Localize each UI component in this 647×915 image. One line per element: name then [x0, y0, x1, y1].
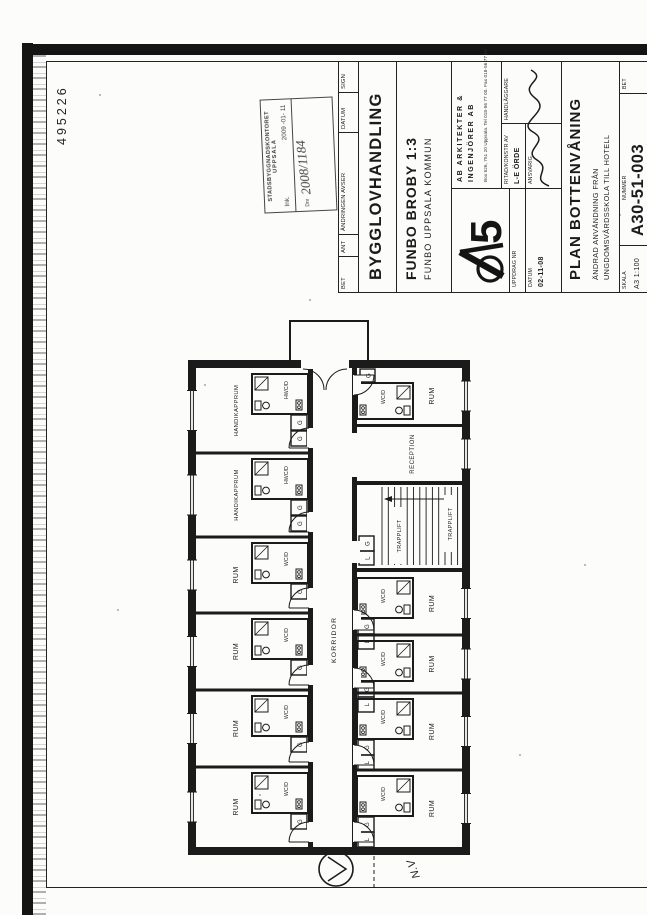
closet-label: L [365, 837, 371, 841]
bath-label: WC/D [381, 710, 387, 724]
wc-tank [404, 726, 410, 735]
room-label: HANDIKAPPRUM [234, 385, 240, 437]
divider [619, 61, 620, 292]
datum-value: 02-11-08 [538, 256, 545, 287]
closet-label: G [298, 436, 304, 441]
bath-label: HWC/D [284, 466, 290, 484]
scan-speckle [309, 299, 311, 301]
sink-bowl [362, 606, 365, 609]
reception-label: RECEPTION [410, 434, 416, 474]
wc-bowl [263, 571, 270, 578]
firm-address: Box 526, 751 20 Uppsala. Tel 018-56 77 0… [483, 64, 488, 182]
rev-header-avser: ÄNDRINGEN AVSER [339, 132, 359, 234]
wc-tank [255, 401, 261, 410]
wall-opening [307, 588, 315, 608]
ritad-label: RITAD/KONSTR AV [504, 135, 510, 184]
wall-opening [461, 381, 471, 411]
wall-opening [352, 433, 360, 477]
divider [561, 61, 562, 292]
bath-label: WC/D [284, 628, 290, 642]
wc-tank [255, 646, 261, 655]
wall-opening [307, 665, 315, 685]
plan-line [255, 377, 268, 390]
wall-opening [187, 714, 197, 744]
room-label: RUM [429, 595, 436, 612]
drawing-title: PLAN BOTTENVÅNING [567, 98, 584, 280]
divider [501, 61, 502, 189]
door-swing [326, 369, 347, 390]
wall [357, 424, 462, 427]
wc-bowl [263, 724, 270, 731]
wc-bowl [263, 801, 270, 808]
bath-label: WC/D [284, 705, 290, 719]
wall [196, 536, 308, 539]
room-label: HANDIKAPPRUM [234, 469, 240, 521]
wall-opening [187, 475, 197, 515]
closet-label: G [298, 505, 304, 510]
sink-bowl [298, 406, 301, 409]
wc-tank [404, 803, 410, 812]
door-swing [289, 822, 309, 842]
wall-opening [187, 637, 197, 667]
wc-tank [404, 406, 410, 415]
wall-opening [307, 428, 315, 448]
wall-opening [352, 541, 360, 563]
closet-label: G [365, 624, 371, 629]
scan-speckle [99, 94, 101, 96]
wall [196, 766, 308, 769]
bath-label: WC/D [381, 652, 387, 666]
door-swing [289, 588, 309, 608]
closet-label: L [365, 760, 371, 764]
scan-speckle [117, 609, 119, 611]
plan-line [255, 776, 268, 789]
sink-bowl [298, 575, 301, 578]
plan-line [255, 462, 268, 475]
wall-opening [353, 610, 361, 630]
scan-speckle [584, 564, 586, 566]
closet-label: L [365, 639, 371, 643]
drawing-sheet: 495226 RUMWC/DGRUMWC/DGRUMWC/DGRUMWC/DGH… [0, 0, 647, 915]
room-label: RUM [233, 720, 240, 737]
rev-header-ant: ANT [339, 234, 359, 256]
wall-opening [187, 391, 197, 431]
wc-tank [255, 570, 261, 579]
sink-bowl [362, 411, 365, 414]
room-label: RUM [233, 643, 240, 660]
scan-speckle [259, 794, 261, 796]
wc-bowl [263, 487, 270, 494]
sink-bowl [298, 487, 301, 490]
plan-line [397, 644, 410, 657]
wall [196, 689, 308, 692]
wall-opening [461, 717, 471, 747]
wall [357, 481, 462, 485]
wall-opening [307, 742, 315, 762]
handwritten-note: N.V [404, 856, 422, 880]
door-swing [303, 369, 324, 390]
divider [451, 61, 452, 292]
divider [619, 245, 647, 246]
rev-header-sign: SIGN [339, 61, 359, 92]
sink-bowl [362, 804, 365, 807]
room-label: RUM [429, 387, 436, 404]
wall-opening [307, 822, 315, 842]
stair-label: TRAPPLIFT [448, 507, 454, 540]
wall-opening [461, 794, 471, 824]
plan-line [255, 546, 268, 559]
bath-label: WC/D [284, 552, 290, 566]
wc-tank [404, 668, 410, 677]
sink-bowl [298, 491, 301, 494]
bath-label: WC/D [381, 787, 387, 801]
document-type: BYGGLOVHANDLING [367, 92, 386, 280]
room-label: RUM [429, 723, 436, 740]
stamp-ink-label: Ink. [284, 196, 291, 207]
plan-line [255, 622, 268, 635]
divider [509, 189, 510, 292]
closet-label: G [298, 420, 304, 425]
room-label: RUM [429, 800, 436, 817]
rev-header-datum: DATUM [339, 92, 359, 132]
municipality: FUNBO UPPSALA KOMMUN [423, 137, 433, 280]
bath-wall [252, 543, 308, 583]
wall-opening [461, 589, 471, 619]
site-circle-symbol [319, 852, 353, 886]
wall-opening [307, 512, 315, 532]
sink-bowl [298, 647, 301, 650]
wc-bowl [396, 804, 403, 811]
wc-bowl [396, 727, 403, 734]
plan-line [397, 702, 410, 715]
ritad-value: L-E ÖRDE [514, 147, 521, 184]
wc-bowl [396, 669, 403, 676]
nummer-label: NUMMER [622, 175, 628, 200]
sink-bowl [298, 402, 301, 405]
room-label: RUM [429, 655, 436, 672]
rev-header-bet: BET [339, 256, 359, 292]
closet-label: L [366, 556, 372, 560]
closet-label: G [366, 541, 372, 546]
signature-scribble [523, 64, 559, 192]
approval-stamp: STADSBYGGNADSKONTORET UPPSALA Ink. 2009 … [260, 96, 338, 213]
wall-opening [353, 375, 361, 395]
sink-bowl [362, 731, 365, 734]
bet-label: BET [622, 78, 628, 89]
wall-opening [461, 439, 471, 469]
wall [196, 612, 308, 615]
sink-bowl [298, 651, 301, 654]
wc-tank [404, 605, 410, 614]
firm-logo-a5: 5 [457, 202, 505, 286]
uppdrag-nr-label: UPPDRAG NR [512, 250, 518, 287]
divider [619, 93, 647, 94]
closet-label: L [365, 702, 371, 706]
skala-label: SKALA [622, 271, 628, 289]
wc-bowl [396, 606, 403, 613]
closet-label: G [298, 521, 304, 526]
wall [196, 452, 308, 455]
wc-tank [255, 486, 261, 495]
sink-bowl [298, 805, 301, 808]
sink-bowl [298, 724, 301, 727]
site-circle-mark [328, 857, 346, 881]
drawing-subtitle-2: UNGDOMSVÅRDSSKOLA TILL HOTELL [602, 135, 611, 280]
wc-bowl [263, 402, 270, 409]
bath-label: HWC/D [284, 381, 290, 399]
firm-name-line2: INGENJÖRER AB [468, 103, 475, 182]
handlaggare-label: HANDLÄGGARE [504, 78, 510, 120]
corridor-label: KORRIDOR [331, 617, 338, 663]
firm-name-line1: AB ARKITEKTER & [457, 94, 464, 182]
wall-opening [353, 668, 361, 688]
divider [396, 61, 397, 292]
scanned-drawing-page: 495226 RUMWC/DGRUMWC/DGRUMWC/DGRUMWC/DGH… [0, 0, 647, 915]
divider [525, 189, 526, 292]
svg-text:5: 5 [462, 220, 505, 244]
scan-speckle [519, 754, 521, 756]
scan-speckle [204, 384, 206, 386]
wc-bowl [396, 407, 403, 414]
stair-label: TRAPPLIFT [397, 519, 403, 552]
sink-bowl [362, 407, 365, 410]
bath-label: WC/D [381, 390, 387, 404]
wall-opening [461, 649, 471, 679]
bath-label: WC/D [284, 782, 290, 796]
sink-bowl [298, 728, 301, 731]
bath-label: WC/D [381, 589, 387, 603]
stamp-ink-date: 2009 -01- 11 [280, 104, 289, 140]
wc-tank [255, 723, 261, 732]
room-label: RUM [233, 566, 240, 583]
entrance-canopy [290, 321, 368, 360]
stamp-dnr-value: 2008/1184 [293, 139, 315, 195]
wall-opening [301, 359, 349, 369]
wall-opening [353, 745, 361, 765]
wall [357, 692, 462, 695]
title-block: BET ANT ÄNDRINGEN AVSER DATUM SIGN BYGGL… [338, 62, 647, 293]
sink-bowl [362, 808, 365, 811]
datum-label: DATUM [528, 268, 534, 287]
plan-line [397, 779, 410, 792]
wall-opening [187, 792, 197, 822]
room-label: RUM [233, 798, 240, 815]
skala-value: A3 1:100 [634, 258, 641, 289]
sink-bowl [298, 571, 301, 574]
wall [188, 360, 196, 855]
drawing-number: A30-51-003 [629, 144, 647, 236]
bath-wall [252, 374, 308, 414]
wall [357, 568, 462, 572]
sink-bowl [362, 727, 365, 730]
sink-bowl [362, 673, 365, 676]
wc-bowl [263, 647, 270, 654]
drawing-subtitle-1: ÄNDRAD ANVÄNDNING FRÅN [591, 168, 600, 280]
stamp-dnr-label: Dnr [305, 198, 311, 206]
wc-tank [255, 800, 261, 809]
sink-bowl [298, 801, 301, 804]
plan-line [255, 699, 268, 712]
bath-wall [252, 619, 308, 659]
bath-wall [252, 459, 308, 499]
wall-opening [353, 822, 361, 842]
plan-line [397, 386, 410, 399]
plan-line [397, 581, 410, 594]
wall-opening [187, 560, 197, 590]
property-name: FUNBO BROBY 1:3 [403, 137, 419, 280]
